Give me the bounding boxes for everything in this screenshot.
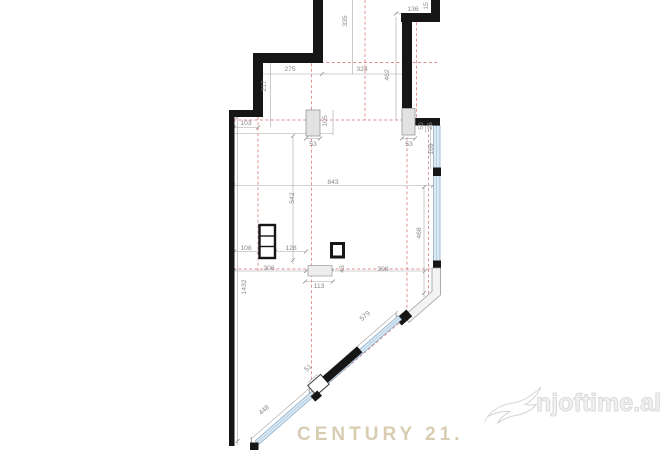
swallow-bird-icon xyxy=(484,381,544,431)
dim-label-468: 468 xyxy=(416,227,423,239)
floorplan-canvas: 335 136 15 275 324 462 217 103 105 53 53… xyxy=(0,0,670,450)
century21-watermark: CENTURY 21. xyxy=(297,424,463,446)
dim-label-103: 103 xyxy=(240,120,252,127)
window-column-upper xyxy=(433,168,441,177)
dim-label-50: 50 xyxy=(418,122,425,130)
dim-label-448: 448 xyxy=(258,404,271,417)
dim-label-275: 275 xyxy=(284,66,296,73)
dim-label-306: 306 xyxy=(263,265,275,272)
dim-label-43: 43 xyxy=(339,265,346,273)
dim-label-335: 335 xyxy=(342,15,349,27)
diagonal-end-column xyxy=(250,443,259,450)
column-mid xyxy=(306,110,320,136)
dim-label-105: 105 xyxy=(322,115,329,127)
dim-label-15: 15 xyxy=(423,2,430,10)
njoftime-logo-text: njoftime.al xyxy=(536,389,661,418)
dim-label-53-a: 53 xyxy=(309,141,317,148)
dim-label-169: 169 xyxy=(428,143,435,155)
column-right xyxy=(402,109,415,136)
dim-label-26: 26 xyxy=(427,122,434,130)
dim-label-136: 136 xyxy=(407,6,419,13)
window-column-lower xyxy=(433,261,441,269)
dim-label-113: 113 xyxy=(314,283,325,290)
shaft-box xyxy=(260,225,276,258)
walls xyxy=(229,0,440,446)
dim-label-324: 324 xyxy=(356,66,368,73)
dim-label-398: 398 xyxy=(377,266,389,273)
dim-label-579: 579 xyxy=(359,310,372,323)
dim-label-843: 843 xyxy=(327,179,339,186)
dim-label-1432: 1432 xyxy=(241,279,248,294)
pillar-box xyxy=(332,244,344,258)
dim-label-108: 108 xyxy=(240,245,252,252)
low-wall xyxy=(308,266,332,277)
diagonal-wall-segment xyxy=(323,346,363,382)
dim-label-51: 51 xyxy=(303,363,313,373)
dim-label-462: 462 xyxy=(384,69,391,81)
dim-label-53-b: 53 xyxy=(405,141,413,148)
dim-label-542: 542 xyxy=(289,192,296,204)
njoftime-logo: njoftime.al xyxy=(484,381,670,433)
dim-label-128: 128 xyxy=(285,245,297,252)
dim-label-217: 217 xyxy=(261,80,268,92)
